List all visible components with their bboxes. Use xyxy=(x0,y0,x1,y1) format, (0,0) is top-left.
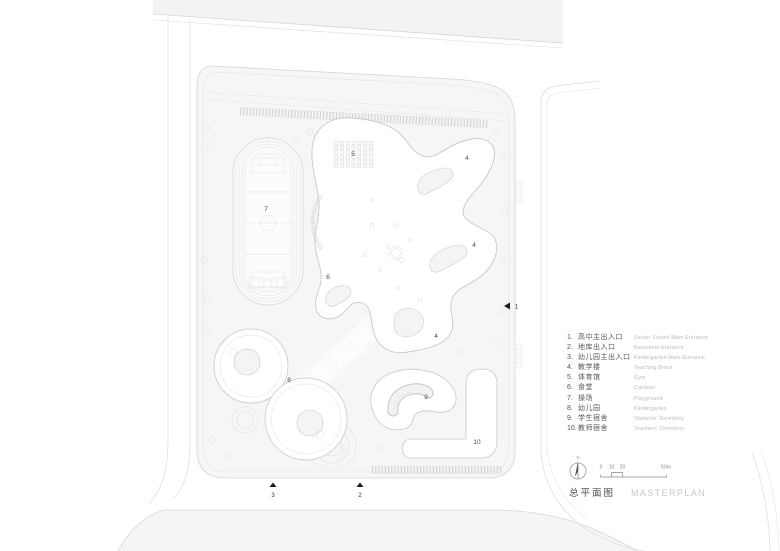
legend-label-zh: 幼儿园主出入口 xyxy=(578,352,634,362)
legend-num: 9. xyxy=(567,415,578,422)
legend-row: 1. 高中主出入口 Senior School Main Entrance xyxy=(567,332,757,342)
legend-num: 8. xyxy=(567,405,578,412)
legend-row: 10. 教师宿舍 Teachers' Dormitory xyxy=(567,423,757,433)
legend-label-en: Gym xyxy=(634,375,646,381)
running-track xyxy=(233,138,303,305)
legend-num: 4. xyxy=(567,364,578,371)
legend-label-en: Teaching Block xyxy=(634,365,672,371)
legend-num: 2. xyxy=(567,344,578,351)
legend-label-zh: 教师宿舍 xyxy=(578,423,634,433)
left-road xyxy=(149,17,190,504)
plan-label-6: 6 xyxy=(326,274,330,281)
legend-row: 3. 幼儿园主出入口 Kindergarten Main Entrance xyxy=(567,352,757,362)
kindergarten-courtyard-b xyxy=(297,410,323,436)
legend-label-en: Teachers' Dormitory xyxy=(634,426,685,432)
svg-text:0: 0 xyxy=(600,465,603,471)
svg-text:3: 3 xyxy=(271,493,275,499)
legend-label-en: Playground xyxy=(634,396,663,402)
plan-label-4c: 4 xyxy=(434,333,438,340)
legend-num: 6. xyxy=(567,384,578,391)
legend-num: 7. xyxy=(567,395,578,402)
legend-num: 10. xyxy=(567,425,578,432)
legend-row: 2. 地库出入口 Basement Entrance xyxy=(567,342,757,352)
plan-label-9: 9 xyxy=(424,394,428,401)
svg-text:2: 2 xyxy=(358,493,362,499)
drawing-title: 总平面图 MASTERPLAN xyxy=(569,485,706,499)
north-arrow: N xyxy=(570,455,586,480)
legend-label-en: Kindergarten Main Entrance xyxy=(634,355,705,361)
legend-label-en: Canteen xyxy=(634,385,655,391)
legend-label-zh: 高中主出入口 xyxy=(578,332,634,342)
svg-text:1: 1 xyxy=(515,305,519,311)
boundary-details xyxy=(516,182,522,368)
legend-row: 5. 体育馆 Gym xyxy=(567,372,757,382)
legend-label-en: Students' Dormitory xyxy=(634,416,684,422)
masterplan-drawing: 5 7 4 4 4 6 8 9 10 1 2 3 N 0 10 20 50m xyxy=(0,0,780,551)
svg-text:10: 10 xyxy=(609,465,615,471)
legend-label-zh: 食堂 xyxy=(578,382,634,392)
title-zh: 总平面图 xyxy=(569,485,615,499)
legend-num: 5. xyxy=(567,374,578,381)
svg-text:50m: 50m xyxy=(661,465,671,471)
plan-label-8: 8 xyxy=(287,377,291,384)
legend-label-en: Kindergarten xyxy=(634,406,667,412)
legend-row: 6. 食堂 Canteen xyxy=(567,382,757,392)
legend-row: 9. 学生宿舍 Students' Dormitory xyxy=(567,413,757,423)
legend-num: 1. xyxy=(567,334,578,341)
plan-label-4a: 4 xyxy=(465,155,469,162)
scale-bar: 0 10 20 50m xyxy=(600,465,671,478)
legend-label-zh: 幼儿园 xyxy=(578,403,634,413)
legend-label-en: Senior School Main Entrance xyxy=(634,335,708,341)
top-road xyxy=(153,0,563,48)
legend-label-zh: 操场 xyxy=(578,393,634,403)
legend-num: 3. xyxy=(567,354,578,361)
right-road xyxy=(541,81,645,551)
north-label: N xyxy=(576,455,579,460)
plan-label-7: 7 xyxy=(264,206,268,213)
legend-label-zh: 体育馆 xyxy=(578,372,634,382)
legend-row: 7. 操场 Playground xyxy=(567,393,757,403)
soccer-field xyxy=(245,154,291,291)
plan-label-10: 10 xyxy=(473,439,481,446)
entrance-marker-3: 3 xyxy=(270,483,277,500)
plan-label-4b: 4 xyxy=(472,242,476,249)
entrance-marker-2: 2 xyxy=(357,483,364,500)
title-en: MASTERPLAN xyxy=(631,488,706,498)
legend: 1. 高中主出入口 Senior School Main Entrance 2.… xyxy=(567,332,757,433)
plan-label-5: 5 xyxy=(351,151,355,158)
legend-label-en: Basement Entrance xyxy=(634,345,684,351)
legend-label-zh: 学生宿舍 xyxy=(578,413,634,423)
legend-label-zh: 地库出入口 xyxy=(578,342,634,352)
svg-text:20: 20 xyxy=(620,465,626,471)
legend-row: 4. 教学楼 Teaching Block xyxy=(567,362,757,372)
kindergarten-courtyard-a xyxy=(234,349,260,375)
legend-label-zh: 教学楼 xyxy=(578,362,634,372)
legend-row: 8. 幼儿园 Kindergarten xyxy=(567,403,757,413)
